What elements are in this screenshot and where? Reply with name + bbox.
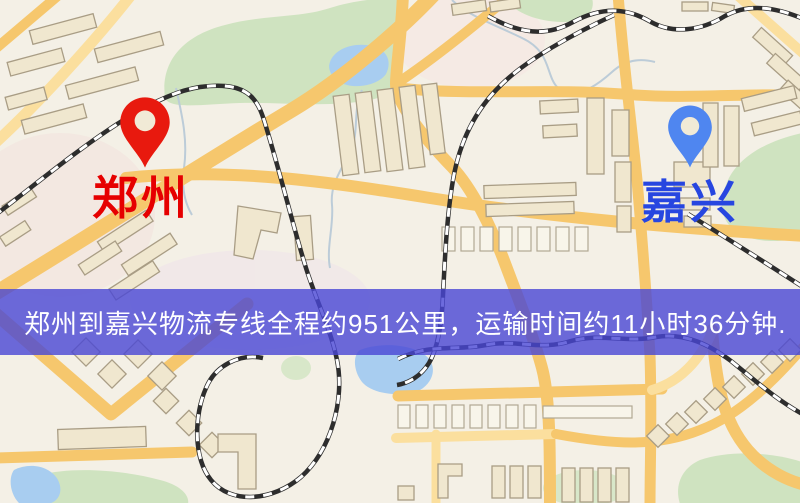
map-screenshot: 郑州 嘉兴 郑州到嘉兴物流专线全程约951公里，运输时间约11小时36分钟. xyxy=(0,0,800,503)
route-info-text: 郑州到嘉兴物流专线全程约951公里，运输时间约11小时36分钟. xyxy=(24,304,787,341)
destination-pin-icon xyxy=(667,104,713,169)
map-canvas xyxy=(0,0,800,503)
origin-pin-icon xyxy=(119,96,171,169)
destination-city-label: 嘉兴 xyxy=(641,180,739,226)
origin-city-label: 郑州 xyxy=(92,176,190,222)
route-info-banner: 郑州到嘉兴物流专线全程约951公里，运输时间约11小时36分钟. xyxy=(0,289,800,355)
